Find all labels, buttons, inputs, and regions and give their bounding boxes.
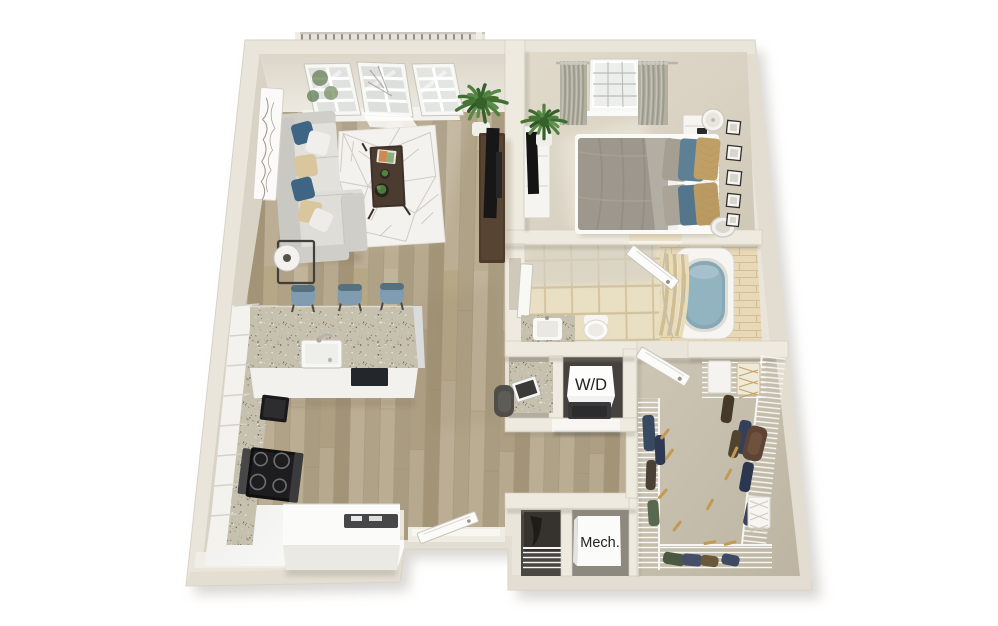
svg-text:W/D: W/D xyxy=(575,376,607,394)
svg-text:Mech.: Mech. xyxy=(580,535,620,551)
